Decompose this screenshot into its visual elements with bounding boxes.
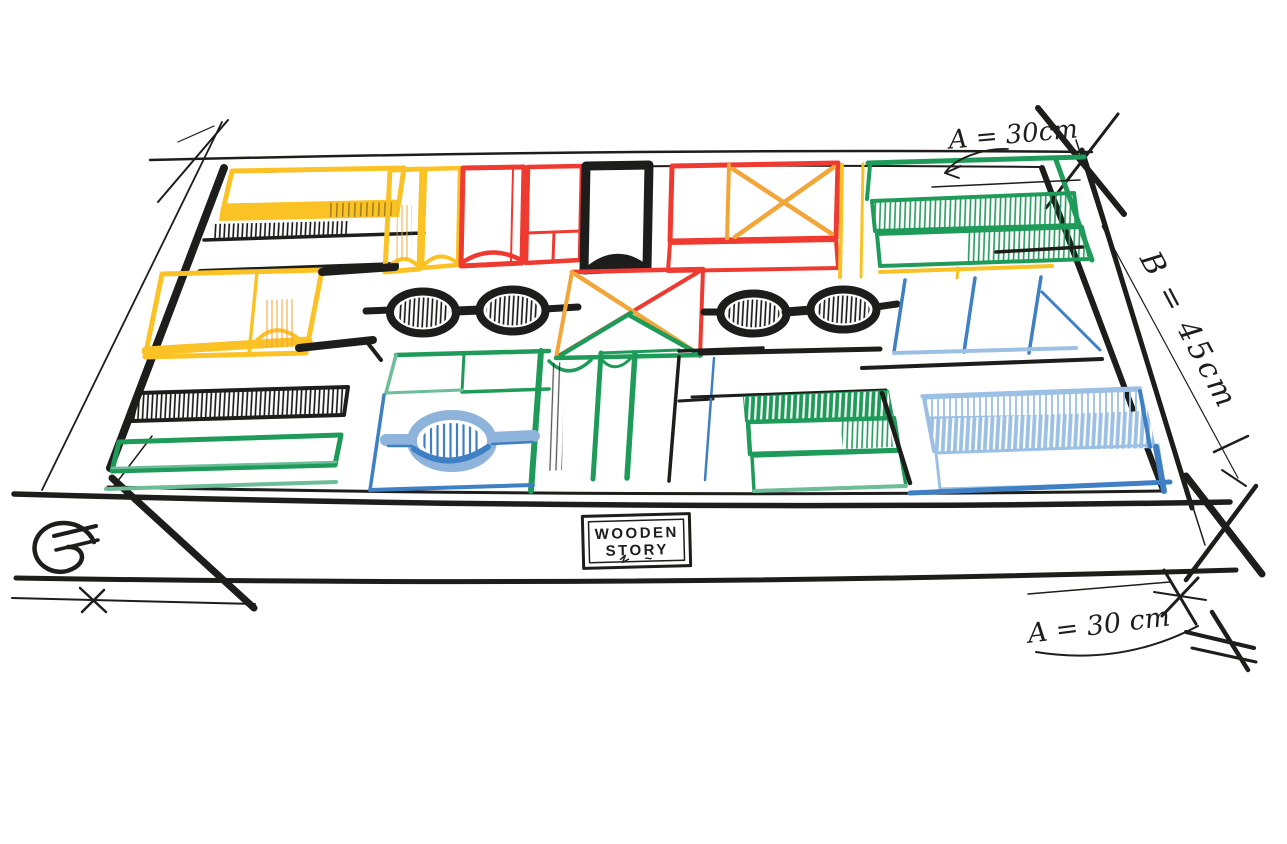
front-row-blue-hatched-planks <box>910 388 1170 493</box>
blocks-front-row <box>106 348 1170 493</box>
sketch-canvas: WOODEN STORY ~ <box>0 0 1287 844</box>
dim-right-text: B = 45cm <box>1132 245 1245 416</box>
middle-row-goggle-blocks-right <box>700 290 897 354</box>
front-row-black-hatched-plank <box>132 387 348 421</box>
back-row-red-frame <box>526 166 582 263</box>
brand-label-flourish: ~ <box>644 551 652 566</box>
dim-bottom-text: A = 30 cm <box>1023 601 1172 650</box>
back-row-red-arch-column <box>461 167 524 266</box>
blocks-back-row <box>200 157 1092 277</box>
brand-label-line2: STORY <box>605 541 669 560</box>
back-row-black-arch-column <box>584 165 649 270</box>
back-row-red-frame-with-orange-cross <box>668 163 838 271</box>
middle-row-goggle-blocks-left <box>366 290 578 334</box>
back-row-green-hatched-planks <box>867 157 1092 266</box>
brand-label-line1: WOODEN <box>595 524 680 543</box>
blocks-tray-sketch: WOODEN STORY ~ <box>0 0 1287 844</box>
back-row-yellow-planks <box>219 168 404 221</box>
dim-bottom: A = 30 cm <box>1023 570 1206 656</box>
front-row-green-hatched-planks <box>692 390 910 491</box>
middle-row-blue-framed-cells <box>862 266 1102 368</box>
brand-label: WOODEN STORY ~ <box>582 514 690 569</box>
front-row-arch-columns <box>547 348 763 481</box>
back-row-yellow-divider <box>840 164 863 277</box>
middle-row-cross-square <box>556 269 703 358</box>
dim-top-text: A = 30cm <box>946 114 1080 155</box>
back-row-yellow-arch-columns <box>385 168 460 272</box>
front-row-green-grid-with-blue-oval <box>370 351 549 491</box>
front-row-green-plank <box>106 435 341 489</box>
